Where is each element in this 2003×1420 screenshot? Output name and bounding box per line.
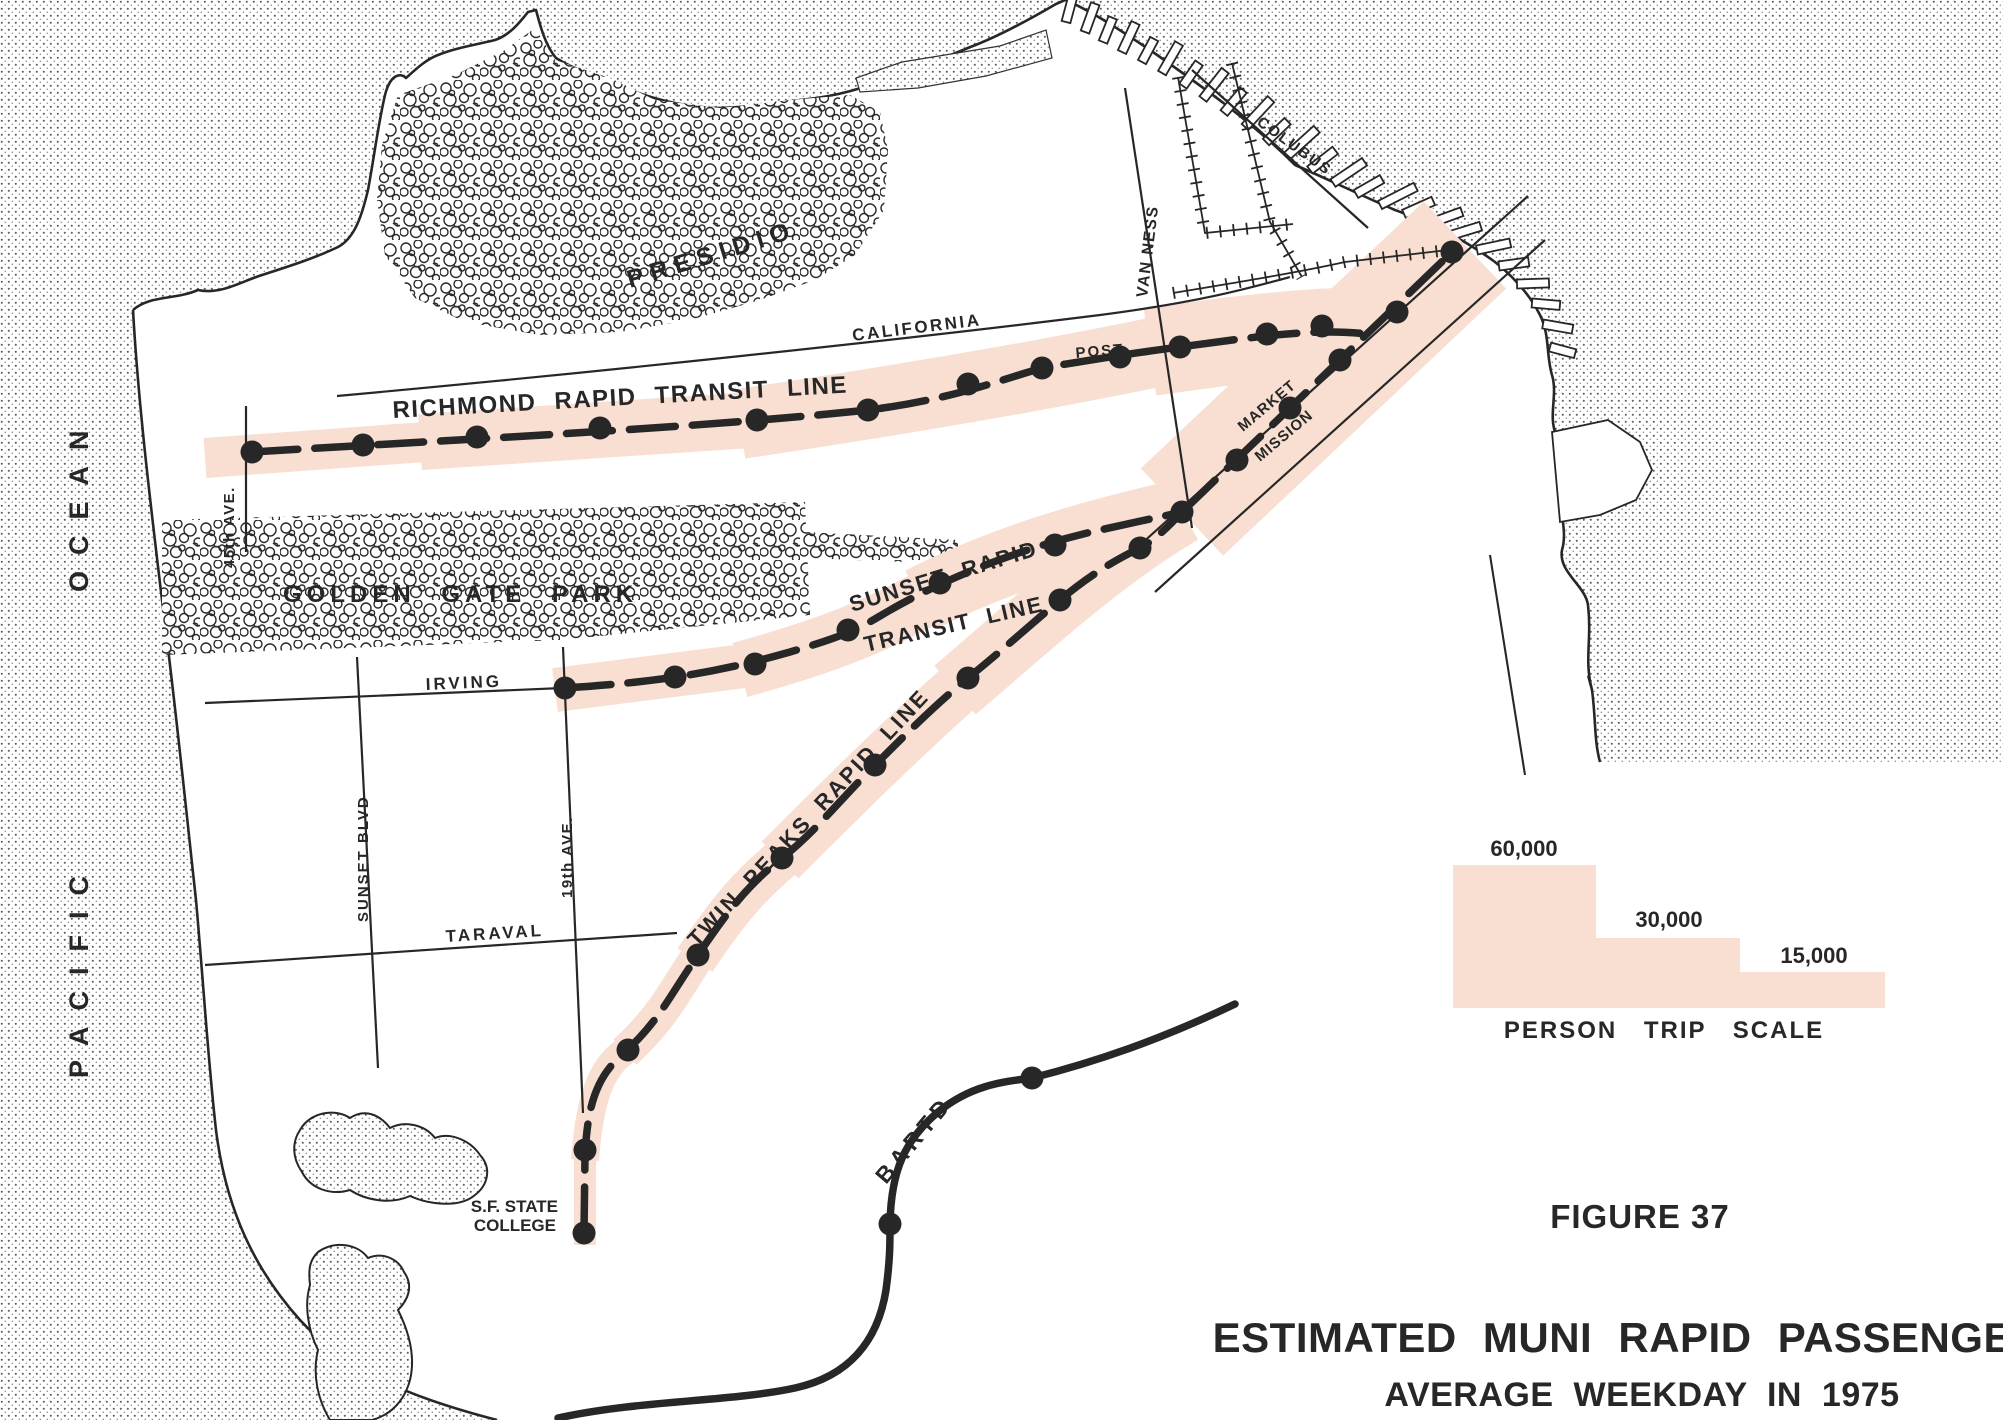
station-dot (664, 666, 687, 689)
bartd-label: BARTD (870, 1091, 958, 1189)
legend-title: PERSON TRIP SCALE (1504, 1017, 1824, 1044)
figure-number: FIGURE 37 (1550, 1198, 1730, 1235)
station-dot (837, 619, 860, 642)
golden-gate-park-area (162, 502, 810, 655)
sunset-blvd-label: SUNSET BLVD (355, 795, 372, 922)
station-dot (574, 1139, 597, 1162)
lake-merced-south (307, 1245, 412, 1420)
station-dot (1169, 336, 1192, 359)
station-dot (1171, 501, 1194, 524)
station-dot (1329, 349, 1352, 372)
station-dot (1044, 534, 1067, 557)
golden-gate-park-label: GOLDEN GATE PARK (283, 581, 638, 608)
twin-peaks-line-label: TWIN PEAKS RAPID LINE (682, 684, 934, 951)
45th-ave-label: 45th AVE. (221, 486, 238, 568)
map-figure: PRESIDIO GOLDEN GATE PARK RICHMOND RAPID… (0, 0, 2003, 1420)
station-dot (1441, 241, 1464, 264)
station-dot (589, 417, 612, 440)
legend-value-60000: 60,000 (1490, 836, 1557, 861)
figure-title-block: FIGURE 37 ESTIMATED MUNI RAPID PASSENGER… (1213, 1198, 2003, 1414)
legend-step-60000 (1453, 865, 1596, 1008)
station-dot (1129, 537, 1152, 560)
sf-state-label-1: S.F. STATE (471, 1197, 558, 1216)
station-dot (957, 373, 980, 396)
legend-step-15000 (1740, 972, 1885, 1008)
pier (1517, 278, 1549, 288)
19th-ave-label: 19th AVE. (559, 816, 576, 898)
station-dot (1049, 589, 1072, 612)
ocean-word-label: OCEAN (64, 414, 94, 592)
irving-line (205, 688, 563, 703)
bartd-line-path (558, 1004, 1235, 1418)
figure-title: ESTIMATED MUNI RAPID PASSENGERS (1213, 1314, 2003, 1361)
california-label: CALIFORNIA (851, 310, 982, 345)
pier (1062, 0, 1077, 23)
station-dot (857, 399, 880, 422)
muni-map-svg: PRESIDIO GOLDEN GATE PARK RICHMOND RAPID… (0, 0, 2003, 1420)
station-dot (879, 1213, 902, 1236)
station-dot (466, 426, 489, 449)
station-dot (554, 677, 577, 700)
station-dot (617, 1039, 640, 1062)
taraval-line (205, 933, 677, 965)
irving-label: IRVING (425, 672, 502, 694)
shore-road (1490, 555, 1525, 775)
station-dot (573, 1222, 596, 1245)
legend-value-30000: 30,000 (1635, 907, 1702, 932)
pier (1099, 16, 1117, 43)
station-dot (1256, 323, 1279, 346)
legend-step-30000 (1596, 938, 1740, 1008)
pacific-label: PACIFIC (64, 860, 94, 1078)
station-dot (1386, 301, 1409, 324)
station-dot (744, 653, 767, 676)
figure-subtitle: AVERAGE WEEKDAY IN 1975 (1384, 1376, 1899, 1414)
sf-state-label-2: COLLEGE (474, 1216, 556, 1235)
pier (1532, 299, 1561, 310)
station-dot (1311, 315, 1334, 338)
station-dot (746, 409, 769, 432)
lake-merced-north (294, 1113, 487, 1204)
station-dot (352, 434, 375, 457)
station-dot (241, 441, 264, 464)
person-trip-scale-legend: 60,000 30,000 15,000 PERSON TRIP SCALE (1453, 836, 1885, 1044)
van-ness-label: VAN NESS (1134, 204, 1162, 298)
station-dot (957, 667, 980, 690)
station-dot (1226, 449, 1249, 472)
legend-value-15000: 15,000 (1780, 943, 1847, 968)
station-dot (1021, 1067, 1044, 1090)
station-dot (1031, 357, 1054, 380)
